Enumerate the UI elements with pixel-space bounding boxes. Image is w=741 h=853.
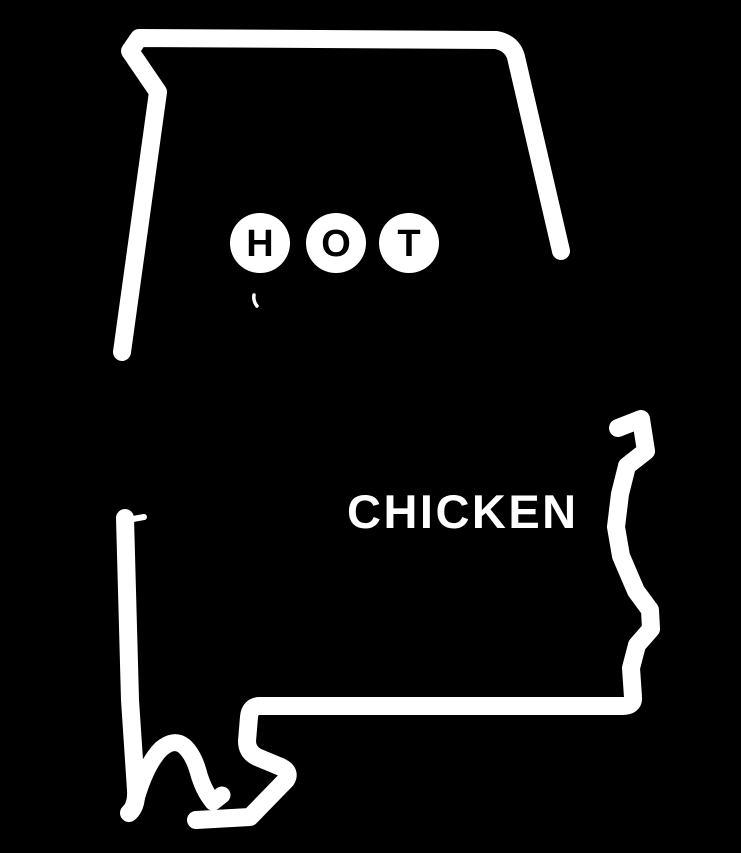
alabama-state-outline-icon — [0, 0, 741, 853]
chicken-wordmark: CHICKEN — [347, 488, 579, 535]
hot-letter-o: O — [321, 225, 351, 263]
border-tick-mark — [133, 517, 144, 519]
hot-letter-circle-h: H — [230, 213, 290, 273]
state-border-top-segment — [122, 38, 561, 352]
hot-letter-circle-o: O — [306, 213, 366, 273]
mobile-bay-squiggle — [134, 743, 222, 806]
state-border-east-south-segment — [196, 419, 651, 820]
logo-canvas: H O T CHICKEN — [0, 0, 741, 853]
hot-letter-circle-t: T — [379, 213, 439, 273]
hot-letter-h: H — [246, 225, 273, 263]
apostrophe-mark — [254, 295, 257, 306]
state-border-west-lower-segment — [125, 518, 136, 813]
hot-letter-t: T — [397, 225, 420, 263]
